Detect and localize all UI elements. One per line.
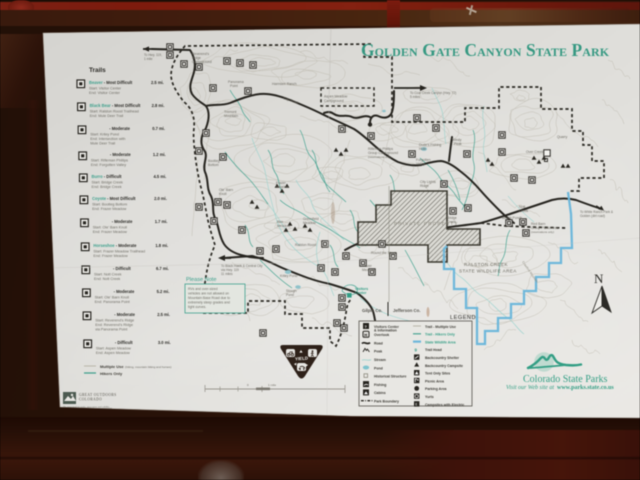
svg-text:Knoll: Knoll [219, 192, 227, 196]
svg-text:Creek: Creek [519, 209, 528, 213]
svg-text:YIELD: YIELD [295, 356, 308, 362]
svg-text:2.0 mi.: 2.0 mi. [154, 196, 167, 201]
svg-text:1.8 mi.: 1.8 mi. [155, 243, 168, 248]
svg-text:- Moderate: - Moderate [109, 126, 130, 131]
svg-text:End: Mule Deer Trail: End: Mule Deer Trail [90, 114, 124, 118]
svg-text:Bottom: Bottom [208, 163, 219, 167]
svg-text:Golden (dirt road): Golden (dirt road) [580, 214, 605, 218]
svg-text:5.2 mi.: 5.2 mi. [157, 289, 170, 294]
svg-text:LEGEND: LEGEND [450, 315, 476, 321]
svg-text:Start: Kriley Pond: Start: Kriley Pond [90, 132, 119, 136]
svg-text:Colorado State Parks: Colorado State Parks [523, 374, 608, 385]
svg-text:Meadow: Meadow [303, 221, 316, 225]
svg-text:RALSTON CREEK: RALSTON CREEK [464, 262, 508, 267]
svg-text:Over Creek: Over Creek [526, 150, 544, 154]
svg-text:Start: Ole' Barn Knoll: Start: Ole' Barn Knoll [93, 225, 127, 229]
svg-text:Meadow: Meadow [277, 224, 290, 228]
svg-text:- Moderate: - Moderate [110, 152, 131, 157]
svg-text:End: Panorama Point: End: Panorama Point [95, 300, 130, 304]
svg-text:Campsites with Electric: Campsites with Electric [425, 403, 464, 407]
svg-text:vehicles are not allowed on: vehicles are not allowed on [188, 292, 229, 296]
svg-text:Stream: Stream [374, 358, 386, 362]
svg-text:State Wildlife Area: State Wildlife Area [425, 340, 456, 344]
svg-text:Campground: Campground [324, 99, 344, 103]
svg-text:Trail - Hikers Only: Trail - Hikers Only [425, 333, 455, 337]
svg-text:Cabins: Cabins [374, 391, 386, 395]
svg-text:Pond: Pond [286, 293, 294, 297]
svg-text:Peak: Peak [454, 142, 462, 146]
svg-text:N: N [594, 271, 604, 286]
svg-text:Backcountry Campsite: Backcountry Campsite [425, 364, 463, 368]
svg-text:Picnic Area: Picnic Area [425, 379, 444, 383]
svg-text:Park Boundary: Park Boundary [374, 400, 399, 404]
svg-text:Start: Aspen Meadow: Start: Aspen Meadow [96, 346, 131, 350]
svg-text:Valley: Valley [416, 162, 425, 166]
svg-text:(reservations only): (reservations only) [368, 155, 391, 159]
svg-text:Creek: Creek [447, 220, 456, 224]
svg-text:Meadow: Meadow [276, 185, 289, 189]
svg-text:Kriley Pond: Kriley Pond [280, 274, 297, 278]
svg-text:0.7 mi.: 0.7 mi. [152, 126, 165, 131]
svg-text:extremely steep grades and: extremely steep grades and [188, 301, 230, 305]
svg-text:End: Frazer Meadow: End: Frazer Meadow [93, 254, 128, 258]
svg-text:Mule Deer Trail: Mule Deer Trail [90, 142, 115, 146]
svg-text:1 mile: 1 mile [268, 383, 276, 387]
svg-text:Beaver - Most Difficult: Beaver - Most Difficult [89, 80, 133, 85]
svg-text:Backcountry Shelter: Backcountry Shelter [425, 356, 460, 360]
svg-text:Gilpin Co.: Gilpin Co. [362, 308, 382, 313]
svg-text:H: H [364, 333, 367, 338]
svg-text:Trail Head: Trail Head [425, 348, 442, 352]
svg-text:STATE WILDLIFE AREA: STATE WILDLIFE AREA [459, 269, 517, 274]
svg-text:(hiking, mountain biking and h: (hiking, mountain biking and horses) [125, 365, 171, 369]
svg-text:11 miles: 11 miles [221, 272, 233, 276]
svg-text:- Moderate: - Moderate [112, 219, 133, 224]
svg-text:6.7 mi.: 6.7 mi. [156, 266, 169, 271]
svg-text:Center: Center [355, 291, 367, 295]
svg-text:Round the Stout: Round the Stout [371, 251, 396, 255]
svg-text:1.7 mi.: 1.7 mi. [155, 219, 168, 224]
svg-text:Hikers Only: Hikers Only [100, 371, 123, 376]
svg-text:Overlook: Overlook [374, 333, 389, 337]
svg-text:Meadow: Meadow [362, 268, 375, 272]
svg-text:Please Note: Please Note [186, 277, 216, 283]
svg-text:End: Bridge Creek: End: Bridge Creek [92, 185, 122, 189]
svg-text:End: Reverend's Ridge: End: Reverend's Ridge [95, 323, 133, 327]
svg-text:End: Forgotten Valley: End: Forgotten Valley [91, 163, 126, 167]
svg-text:Mountain: Mountain [224, 114, 238, 118]
svg-text:Start: Bootleg Bottom: Start: Bootleg Bottom [92, 202, 127, 206]
svg-text:Start: Nott Creek: Start: Nott Creek [94, 272, 122, 276]
svg-text:2.5 mi.: 2.5 mi. [151, 80, 164, 85]
svg-text:Pond: Pond [374, 366, 383, 370]
svg-text:Hole: Hole [419, 147, 426, 151]
svg-text:Aspen Meadow: Aspen Meadow [324, 95, 348, 99]
svg-text:End: Intersection with: End: Intersection with [90, 137, 125, 141]
svg-text:Bench Ponds: Bench Ponds [502, 216, 522, 220]
svg-text:End: Aspen Meadow: End: Aspen Meadow [96, 351, 130, 355]
svg-text:& Information: & Information [374, 329, 397, 333]
svg-text:Trail - Multiple Use: Trail - Multiple Use [425, 325, 456, 329]
svg-text:Yurts: Yurts [425, 395, 434, 399]
svg-text:COLORADO: COLORADO [79, 398, 102, 402]
svg-text:Start: Visitor Center: Start: Visitor Center [89, 86, 122, 90]
svg-text:Black Bear - Most Difficult: Black Bear - Most Difficult [90, 103, 141, 108]
svg-text:- Moderate: - Moderate [114, 312, 135, 317]
svg-text:Start: Ole' Barn Knoll: Start: Ole' Barn Knoll [95, 295, 129, 299]
svg-text:Tent Only Sites: Tent Only Sites [425, 372, 450, 376]
svg-text:Horseshoe - Moderate: Horseshoe - Moderate [93, 243, 137, 248]
svg-text:3.0 mi.: 3.0 mi. [158, 340, 171, 345]
svg-text:Road: Road [374, 341, 383, 345]
svg-text:- Difficult: - Difficult [115, 340, 133, 345]
svg-text:Ralston Roost: Ralston Roost [295, 243, 316, 247]
svg-text:Peak: Peak [374, 350, 382, 354]
svg-text:Multiple Use: Multiple Use [100, 364, 124, 369]
svg-text:4.5 mi.: 4.5 mi. [154, 174, 167, 179]
svg-text:via Panorama Point: via Panorama Point [95, 328, 127, 332]
svg-text:Start: Ralston Roost Trailhea: Start: Ralston Roost Trailhead [90, 109, 139, 113]
svg-text:Fishing: Fishing [374, 383, 386, 387]
svg-text:Burro - Difficult: Burro - Difficult [92, 174, 123, 179]
svg-text:GREAT OUTDOORS: GREAT OUTDOORS [79, 393, 117, 397]
svg-text:Jefferson Co.: Jefferson Co. [393, 308, 420, 313]
svg-text:Start: Reverend's Ridge: Start: Reverend's Ridge [95, 318, 134, 322]
svg-text:Parking Area: Parking Area [425, 387, 447, 391]
svg-text:End: Visitor Center: End: Visitor Center [89, 91, 121, 95]
svg-text:Visit our Web site at: Visit our Web site at [506, 385, 554, 391]
svg-text:2.5 mi.: 2.5 mi. [157, 312, 170, 317]
svg-text:1.2 mi.: 1.2 mi. [153, 152, 166, 157]
svg-text:Start: Rifleman Phillips: Start: Rifleman Phillips [91, 158, 128, 162]
svg-text:E: E [415, 402, 417, 406]
svg-text:End: Frazer Meadow: End: Frazer Meadow [93, 230, 128, 234]
svg-text:Campground: Campground [192, 60, 212, 64]
svg-text:Golden Gate Canyon State Park: Golden Gate Canyon State Park [361, 40, 610, 60]
svg-text:(reservations only): (reservations only) [531, 230, 554, 234]
svg-text:RVs and over-sized: RVs and over-sized [188, 287, 218, 291]
svg-text:End: Nott Creek: End: Nott Creek [94, 277, 120, 281]
svg-text:Coyote - Most Difficult: Coyote - Most Difficult [92, 196, 136, 201]
svg-text:Harmsen Ranch: Harmsen Ranch [272, 82, 297, 86]
svg-text:Quarry: Quarry [557, 135, 568, 139]
svg-text:Ridge: Ridge [420, 184, 429, 188]
svg-text:Start: Frazer Meadow Trailhea: Start: Frazer Meadow Trailhead [93, 249, 145, 253]
svg-text:2.8 mi.: 2.8 mi. [152, 103, 165, 108]
svg-text:5 miles: 5 miles [410, 95, 421, 99]
svg-text:Historical Structure: Historical Structure [374, 375, 407, 379]
svg-text:- Difficult: - Difficult [113, 266, 131, 271]
svg-text:Point: Point [230, 84, 238, 88]
svg-text:Mountain Base Road due to: Mountain Base Road due to [188, 296, 230, 300]
svg-text:End: Frazer Meadow: End: Frazer Meadow [92, 207, 127, 211]
svg-text:www.parks.state.co.us: www.parks.state.co.us [557, 385, 614, 391]
svg-text:- Moderate: - Moderate [114, 289, 135, 294]
svg-text:tight curves.: tight curves. [188, 305, 206, 309]
svg-text:1 mile: 1 mile [144, 57, 153, 61]
svg-text:Start: Bridge Creek: Start: Bridge Creek [92, 180, 124, 184]
svg-text:Trails: Trails [89, 67, 106, 74]
